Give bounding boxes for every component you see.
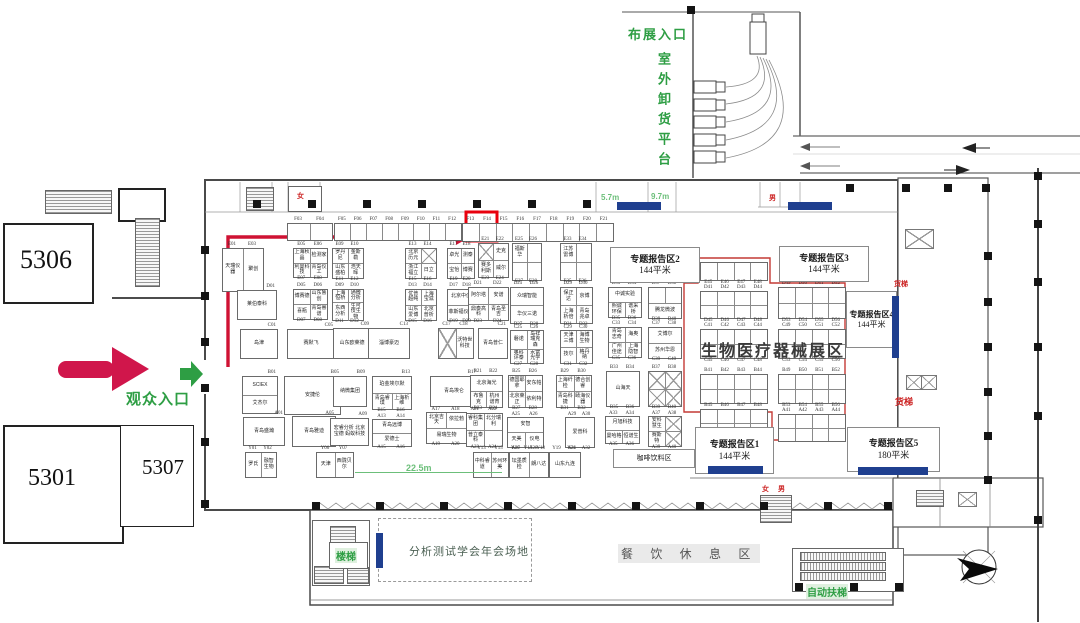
booth-label-row: A19A20 bbox=[426, 442, 465, 447]
booth-island: 艾博尔苏州华恩 bbox=[648, 327, 682, 359]
booth-label-row: C13 bbox=[368, 322, 410, 327]
booth-cell: 青岛睿璞 bbox=[373, 394, 392, 410]
booth-cell: 熙诚环保 bbox=[609, 303, 625, 317]
stage-bar bbox=[788, 202, 832, 210]
structural-column bbox=[984, 298, 992, 306]
booth-island: 珀金埃尔默青岛睿璞上海析维 bbox=[372, 376, 412, 410]
booth-island bbox=[287, 223, 333, 241]
booth-cell bbox=[665, 432, 682, 446]
booth-cell bbox=[439, 329, 456, 358]
booth-cell: 福斯华 bbox=[513, 244, 527, 262]
booth-cell: 依拉勃 bbox=[446, 413, 466, 428]
booth-island: 山东欧莱德 bbox=[333, 328, 371, 359]
booth-cell bbox=[734, 292, 751, 305]
booth-island: 北京历元浙江福立日立 bbox=[405, 248, 437, 279]
booth-label-row: B49B50B51B52 bbox=[778, 368, 844, 373]
booth-cell bbox=[288, 224, 310, 240]
booth-island: 安智天美仪电 bbox=[507, 417, 544, 448]
booth-label-row: E05E06 bbox=[293, 242, 326, 247]
booth-island: 上海秋晶检测家利曼科技青岛仪工 bbox=[293, 248, 328, 278]
booth-label-row: B41B42B43B44 bbox=[700, 368, 766, 373]
booth-cell bbox=[795, 415, 812, 428]
setup-entrance-label: 布展入口 bbox=[628, 24, 688, 43]
booth-label-row: B33B34 bbox=[606, 365, 638, 370]
booth-label-row: D29D30 bbox=[560, 281, 591, 286]
report-zone: 专题报告区5180平米 bbox=[847, 427, 940, 472]
booth-cell: 山东盛柏 bbox=[333, 264, 348, 278]
booth-label-row: D25D26 bbox=[510, 281, 542, 286]
booth-cell: 博赛 bbox=[461, 264, 475, 278]
booth-cell bbox=[717, 390, 734, 404]
booth-cell: 赛斯特 bbox=[649, 432, 665, 446]
booth-label-row: D13D14 bbox=[405, 283, 435, 288]
booth-label-row: A15A16 bbox=[372, 445, 410, 450]
booth-island: 阿尔塔安谱鼎泰高科青岛圣吉 bbox=[468, 287, 509, 321]
booth-label-row: B25B26 bbox=[508, 369, 541, 374]
booth-cell bbox=[717, 306, 734, 319]
structural-column bbox=[984, 432, 992, 440]
booth-cell: 中科睿道 bbox=[474, 453, 491, 477]
booth-cell: 海博生物 bbox=[576, 331, 592, 347]
booth-cell bbox=[596, 224, 613, 241]
booth-cell: 海奥 bbox=[625, 328, 642, 342]
booth-island: 卓光测泰宝怡博赛 bbox=[447, 248, 475, 279]
booth-island: 天津三博海博生物技尔格丹纳 bbox=[560, 330, 593, 364]
booth-cell: 上海析维 bbox=[392, 394, 412, 410]
booth-cell: 罗氏 bbox=[246, 453, 261, 477]
booth-label-row: Y16Y17Y18 bbox=[509, 446, 547, 451]
booth-cell bbox=[734, 306, 751, 319]
booth-cell: 坛墨质检 bbox=[510, 453, 529, 477]
booth-cell: 天津三博 bbox=[561, 331, 576, 347]
structural-column bbox=[824, 502, 832, 510]
booth-cell: 青岛志奇 bbox=[609, 328, 625, 342]
structural-column bbox=[895, 583, 903, 591]
booth-label-row: A35A36 bbox=[605, 442, 638, 447]
booth-island: 上海纤检德合创睿青岛科捷赜海仪器 bbox=[556, 375, 592, 408]
booth-label-row: B21B22 bbox=[470, 369, 501, 374]
booth-label-row: Y06Y07 bbox=[316, 446, 352, 451]
escalator-tread-3 bbox=[800, 572, 886, 581]
booth-island: SCIEX艾杰尔 bbox=[242, 376, 278, 414]
booth-label-row: C21 bbox=[478, 322, 508, 327]
escalator-tread-2 bbox=[800, 562, 886, 571]
structural-column bbox=[1034, 343, 1042, 351]
booth-cell: 上海秋晶 bbox=[294, 249, 310, 263]
trucks bbox=[694, 14, 766, 163]
booth-label-row: A25A26 bbox=[507, 412, 542, 417]
booth-label-row: B29B30 bbox=[556, 369, 590, 374]
booth-cell bbox=[734, 410, 751, 423]
booth-island bbox=[334, 223, 462, 241]
booth-cell: 青岛雅迪 bbox=[293, 417, 335, 446]
booth-cell: 依利特 bbox=[525, 392, 542, 407]
booth-cell bbox=[421, 249, 437, 263]
biomed-zone-label: 生物医疗器械展区 bbox=[701, 337, 845, 361]
booth-label-row: A17A18 bbox=[426, 407, 465, 412]
booth-cell bbox=[812, 429, 829, 442]
booth-label-row: Y19Y21 bbox=[549, 446, 579, 451]
booth-label-row: Y01Y02 bbox=[245, 446, 275, 451]
entrance-arrow-icon bbox=[180, 361, 203, 387]
booth-cell bbox=[750, 306, 767, 319]
booth-cell: 淄博豪迈 bbox=[369, 329, 409, 358]
booth-island: 中诚实验熙诚环保谱采桥 bbox=[608, 287, 642, 318]
booth-cell bbox=[828, 375, 845, 389]
booth-cell: 青岛仪工 bbox=[310, 264, 327, 278]
booth-label-row: C37C38 bbox=[648, 321, 680, 326]
booth-cell: 珀金埃尔默 bbox=[373, 377, 411, 393]
booth-cell: 安谱 bbox=[488, 288, 508, 304]
booth-label-row: F13F14F15F16F17F18F19F20F21 bbox=[462, 217, 612, 222]
structural-column bbox=[1034, 172, 1042, 180]
structural-column bbox=[687, 6, 695, 14]
escalator-tread-1 bbox=[800, 552, 886, 561]
booth-cell: 青岛科捷 bbox=[557, 392, 574, 407]
structural-column bbox=[760, 502, 768, 510]
booth-cell: 纳微集团 bbox=[334, 377, 366, 406]
booth-cell: 天津 bbox=[317, 453, 335, 477]
structural-column bbox=[1034, 412, 1042, 420]
booth-label-row: E25E26 bbox=[512, 237, 540, 242]
booth-cell: 上海宝滋 bbox=[421, 290, 437, 305]
booth-cell: 苏州环美 bbox=[491, 453, 509, 477]
booth-cell: 威尔 bbox=[493, 261, 508, 277]
booth-cell: 杭州谱育 bbox=[486, 392, 502, 407]
structural-column bbox=[984, 343, 992, 351]
room-5301-label: 5301 bbox=[28, 465, 76, 492]
booth-label-row: B27B28 bbox=[508, 406, 541, 411]
booth-label-row: C29C30 bbox=[560, 325, 591, 330]
structural-column bbox=[632, 502, 640, 510]
booth-label-row: B45B46B47B48 bbox=[700, 403, 766, 408]
booth-label-row: E17E18 bbox=[447, 242, 473, 247]
booth-label-row: C17C18 bbox=[438, 322, 472, 327]
booth-cell: 赛默飞 bbox=[288, 330, 334, 358]
booth-cell bbox=[779, 375, 795, 389]
booth-label-row: E01E03 bbox=[222, 242, 262, 247]
booth-island: 青岛盛瀚 bbox=[243, 417, 285, 446]
booth-cell bbox=[649, 372, 665, 389]
booth-cell bbox=[398, 224, 414, 240]
booth-cell bbox=[665, 390, 682, 407]
booth-cell: 莱伯泰科 bbox=[238, 291, 276, 319]
booth-label-row: A01 bbox=[243, 411, 285, 416]
booth-cell: 山东爱博 bbox=[406, 306, 421, 321]
booth-cell: 赛多利斯 bbox=[479, 261, 493, 277]
booth-cell: 京博 bbox=[576, 288, 592, 305]
booth-island: 保正达京博上海析倍青岛兆卓 bbox=[560, 287, 593, 324]
structural-column bbox=[982, 184, 990, 192]
structural-column bbox=[312, 502, 320, 510]
booth-cell: 谱采桥 bbox=[625, 303, 642, 317]
booth-cell: 月旭科技 bbox=[606, 417, 639, 430]
booth-cell bbox=[750, 390, 767, 404]
booth-cell: 德国耶拿 bbox=[509, 376, 525, 391]
booth-island bbox=[778, 374, 846, 404]
booth-label-row: B13 bbox=[372, 370, 412, 375]
booth-cell bbox=[750, 375, 767, 389]
elevator-right-1 bbox=[905, 229, 934, 249]
booth-cell: 磐诺 bbox=[511, 331, 527, 349]
booth-label-row: C49C50C51C52 bbox=[778, 323, 844, 328]
booth-cell: 仪电 bbox=[525, 433, 543, 447]
booth-island: 爱普科 bbox=[565, 417, 595, 448]
booth-cell bbox=[665, 288, 682, 303]
booth-cell: 史克 bbox=[493, 244, 508, 260]
booth-island bbox=[778, 287, 846, 319]
booth-cell: 布鲁克 bbox=[471, 392, 486, 407]
stage-bar bbox=[892, 296, 899, 358]
booth-cell bbox=[649, 288, 665, 303]
booth-cell: 普立泰科 bbox=[467, 431, 484, 447]
booth-cell: 天美 bbox=[508, 433, 525, 447]
booth-cell bbox=[576, 244, 592, 262]
booth-label-row: C31C32 bbox=[560, 362, 591, 367]
booth-label-row: B31B32 bbox=[556, 406, 590, 411]
booth-label-row: B39B40 bbox=[648, 405, 680, 410]
left-landing bbox=[118, 188, 166, 222]
booth-cell bbox=[812, 375, 829, 389]
booth-cell bbox=[779, 429, 795, 442]
structural-column bbox=[363, 200, 371, 208]
booth-cell: 保正达 bbox=[561, 288, 576, 305]
booth-label-row: C09 bbox=[333, 322, 371, 327]
booth-cell: 检测家 bbox=[310, 249, 327, 263]
booth-cell bbox=[479, 244, 493, 260]
booth-cell: 青岛睿谱 bbox=[310, 305, 327, 319]
booth-cell bbox=[795, 304, 812, 319]
booth-cell: 安科慧生 bbox=[649, 417, 665, 431]
booth-cell: 青岛盛瀚 bbox=[244, 418, 284, 445]
booth-cell bbox=[750, 410, 767, 423]
booth-cell bbox=[445, 224, 461, 240]
booth-cell bbox=[561, 263, 576, 281]
booth-cell: 融智生物 bbox=[261, 453, 277, 477]
booth-cell bbox=[701, 292, 717, 305]
stage-bar bbox=[376, 533, 383, 568]
booth-label-row: C33C34 bbox=[608, 321, 640, 326]
booth-cell: 格丹纳 bbox=[576, 348, 592, 364]
booth-island: 宏睿分析 北京宝德 蚂蚁科技 bbox=[330, 418, 369, 446]
booth-island: 莱伯泰科 bbox=[237, 290, 277, 320]
booth-cell bbox=[413, 224, 429, 240]
booth-cell bbox=[734, 390, 751, 404]
booth-cell: 卓光 bbox=[448, 249, 461, 263]
booth-island: 德国耶拿安东帕北京莱正依利特 bbox=[508, 375, 543, 408]
booth-cell: 德合创睿 bbox=[574, 376, 592, 391]
booth-cell bbox=[795, 288, 812, 303]
annual-meeting-label: 分析测试学会年会场地 bbox=[409, 543, 529, 559]
booth-cell: 广州佳途 bbox=[609, 343, 625, 357]
booth-label-row: D01 bbox=[237, 284, 277, 289]
stage-bar bbox=[858, 467, 928, 475]
booth-cell bbox=[750, 263, 767, 280]
booth-island bbox=[648, 371, 682, 407]
booth-cell bbox=[779, 415, 795, 428]
booth-island bbox=[700, 291, 768, 319]
booth-cell: 优普超纯 bbox=[406, 290, 421, 305]
booth-island: 岛津 bbox=[240, 329, 278, 359]
booth-cell bbox=[795, 429, 812, 442]
visitor-entrance-label: 观众入口 bbox=[126, 388, 190, 409]
structural-column bbox=[201, 338, 209, 346]
booth-cell: 艾博尔 bbox=[649, 328, 681, 343]
booth-cell bbox=[828, 304, 845, 319]
booth-label-row: E09E10 bbox=[332, 242, 362, 247]
booth-cell: 睿科集团 bbox=[467, 414, 484, 430]
booth-cell bbox=[701, 410, 717, 423]
booth-cell: 安东帕 bbox=[525, 376, 542, 391]
structural-column bbox=[201, 246, 209, 254]
room-5307-label: 5307 bbox=[142, 455, 184, 480]
booth-cell: 众瑞智能 bbox=[511, 288, 543, 305]
booth-label-row: E15E16 bbox=[405, 277, 435, 282]
booth-cell bbox=[701, 263, 717, 280]
booth-cell: 北京吉天 bbox=[427, 413, 446, 428]
booth-cell: 青岛普仁 bbox=[479, 329, 507, 358]
booth-cell: 朗八达 bbox=[529, 453, 549, 477]
unload-platform-label: 室外卸货平台 bbox=[654, 52, 673, 172]
top-room bbox=[288, 186, 322, 212]
structural-column bbox=[1034, 278, 1042, 286]
stage-bar bbox=[708, 466, 763, 474]
booth-cell: 浙江福立 bbox=[406, 264, 421, 278]
report-zone: 专题报告区2144平米 bbox=[610, 247, 700, 283]
booth-cell bbox=[734, 263, 751, 280]
booth-cell: 利曼科技 bbox=[294, 264, 310, 278]
booth-island: 青岛普仁 bbox=[478, 328, 508, 359]
booth-cell: 上海隐智 bbox=[625, 343, 642, 357]
booth-cell bbox=[828, 390, 845, 404]
booth-cell: 西陇贝尔 bbox=[335, 453, 354, 477]
wc-male-top: 男 bbox=[769, 193, 776, 203]
report-zone: 专题报告区4144平米 bbox=[846, 291, 897, 348]
booth-cell bbox=[701, 375, 717, 389]
booth-island bbox=[778, 414, 846, 442]
booth-cell bbox=[429, 224, 445, 240]
dim-5-7m: 5.7m bbox=[601, 193, 619, 202]
structural-column bbox=[795, 583, 803, 591]
booth-label-row: A09 bbox=[330, 412, 369, 417]
booth-island: 福斯华 bbox=[512, 243, 542, 281]
booth-label-row: C25C26 bbox=[510, 325, 542, 330]
coffee-area-label: 咖啡饮料区 bbox=[637, 454, 672, 463]
booth-cell: 北京海光 bbox=[471, 376, 502, 391]
room-5306-label: 5306 bbox=[20, 245, 72, 275]
structural-column bbox=[201, 292, 209, 300]
elevator-right-3 bbox=[921, 375, 937, 390]
booth-cell bbox=[527, 244, 542, 262]
booth-cell: 北京历元 bbox=[406, 249, 421, 263]
booth-cell bbox=[576, 263, 592, 281]
stairs-label: 楼梯 bbox=[335, 548, 357, 563]
structural-column bbox=[884, 502, 892, 510]
booth-island: 青岛志奇海奥广州佳途上海隐智 bbox=[608, 327, 642, 358]
booth-cell bbox=[812, 304, 829, 319]
booth-cell: 沃特世科技 bbox=[456, 329, 474, 358]
structural-column bbox=[1034, 516, 1042, 524]
booth-cell: 宏睿分析 北京宝德 蚂蚁科技 bbox=[331, 419, 368, 445]
booth-cell bbox=[717, 263, 734, 280]
booth-cell: 上海纤检 bbox=[557, 376, 574, 391]
booth-cell: 浩天晖 bbox=[348, 264, 364, 278]
elevator-right-2 bbox=[906, 375, 922, 390]
booth-cell bbox=[484, 431, 502, 447]
booth-island: 优普超纯上海宝滋山东爱博北京普析 bbox=[405, 289, 437, 321]
structural-column bbox=[984, 388, 992, 396]
booth-cell: 江苏雷博 bbox=[561, 244, 576, 262]
booth-label-row: D05D06 bbox=[293, 283, 326, 288]
booth-label-row: D41D42D43D44 bbox=[700, 285, 766, 290]
booth-cell: 安捷伦 bbox=[285, 377, 340, 414]
booth-island: 青岛远博爱德士 bbox=[372, 419, 412, 447]
wc-female-bottom: 女 bbox=[762, 484, 769, 494]
exhibition-floor-plan: 5306 5301 5307 咖啡饮料区 布展入口 室外卸货平台 观众入口 生物… bbox=[0, 0, 1080, 623]
structural-column bbox=[376, 502, 384, 510]
booth-cell: 宝怡 bbox=[448, 264, 461, 278]
booth-cell bbox=[310, 224, 333, 240]
booth-label-row: D09D10 bbox=[332, 283, 362, 288]
wc-female-top: 女 bbox=[297, 191, 304, 201]
booth-island: 上海恒桥通微分析东西分析生可伎生物 bbox=[332, 289, 364, 321]
dim-9-7m: 9.7m bbox=[651, 192, 669, 201]
booth-island: 罗丹尼金斯勒山东盛柏浩天晖 bbox=[332, 248, 364, 279]
structural-column bbox=[846, 184, 854, 192]
booth-cell: 金斯勒 bbox=[348, 249, 364, 263]
booth-island: 淄博豪迈 bbox=[368, 328, 410, 359]
booth-cell bbox=[717, 410, 734, 423]
booth-island: 博赛德山东鲁创喜瓶青岛睿谱 bbox=[293, 289, 328, 320]
structural-column bbox=[201, 384, 209, 392]
booth-island: 沃特世科技 bbox=[438, 328, 474, 359]
booth-cell: 青岛兆卓 bbox=[576, 306, 592, 323]
booth-cell bbox=[717, 292, 734, 305]
booth-cell bbox=[701, 390, 717, 404]
booth-island: 江苏雷博 bbox=[560, 243, 592, 281]
booth-island bbox=[700, 262, 768, 281]
booth-cell bbox=[812, 415, 829, 428]
booth-cell bbox=[701, 306, 717, 319]
freight-lift-bottom-label: 货梯 bbox=[895, 395, 913, 408]
booth-island: 北京海光布鲁克杭州谱育 bbox=[470, 375, 503, 408]
booth-label-row: E07E08 bbox=[293, 276, 326, 281]
booth-label-row: B37B38 bbox=[648, 365, 680, 370]
booth-cell: 安智 bbox=[508, 418, 543, 432]
booth-label-row: C05 bbox=[287, 323, 335, 328]
booth-island bbox=[700, 374, 768, 404]
structural-column bbox=[440, 502, 448, 510]
booth-cell: 赜海仪器 bbox=[574, 392, 592, 407]
dim-22-5m: 22.5m bbox=[406, 463, 432, 473]
booth-label-row: C41C42C43C44 bbox=[700, 323, 766, 328]
structural-column bbox=[944, 184, 952, 192]
report-zone: 专题报告区3144平米 bbox=[779, 246, 869, 282]
elevator-bottom bbox=[958, 492, 977, 507]
booth-island: 罗氏融智生物 bbox=[245, 452, 277, 478]
booth-cell bbox=[750, 292, 767, 305]
booth-cell: 易瑞生物 bbox=[427, 429, 466, 444]
booth-cell: 山东欧莱德 bbox=[334, 329, 370, 358]
booth-cell bbox=[463, 224, 479, 241]
booth-cell bbox=[828, 415, 845, 428]
booth-island: 众瑞智能华仪三诺 bbox=[510, 287, 544, 324]
stairs-bottom-right bbox=[916, 490, 944, 507]
booth-cell: 青岛远博 bbox=[373, 420, 411, 433]
booth-cell bbox=[828, 429, 845, 442]
booth-cell bbox=[649, 390, 665, 407]
booth-label-row: C01 bbox=[240, 323, 278, 328]
